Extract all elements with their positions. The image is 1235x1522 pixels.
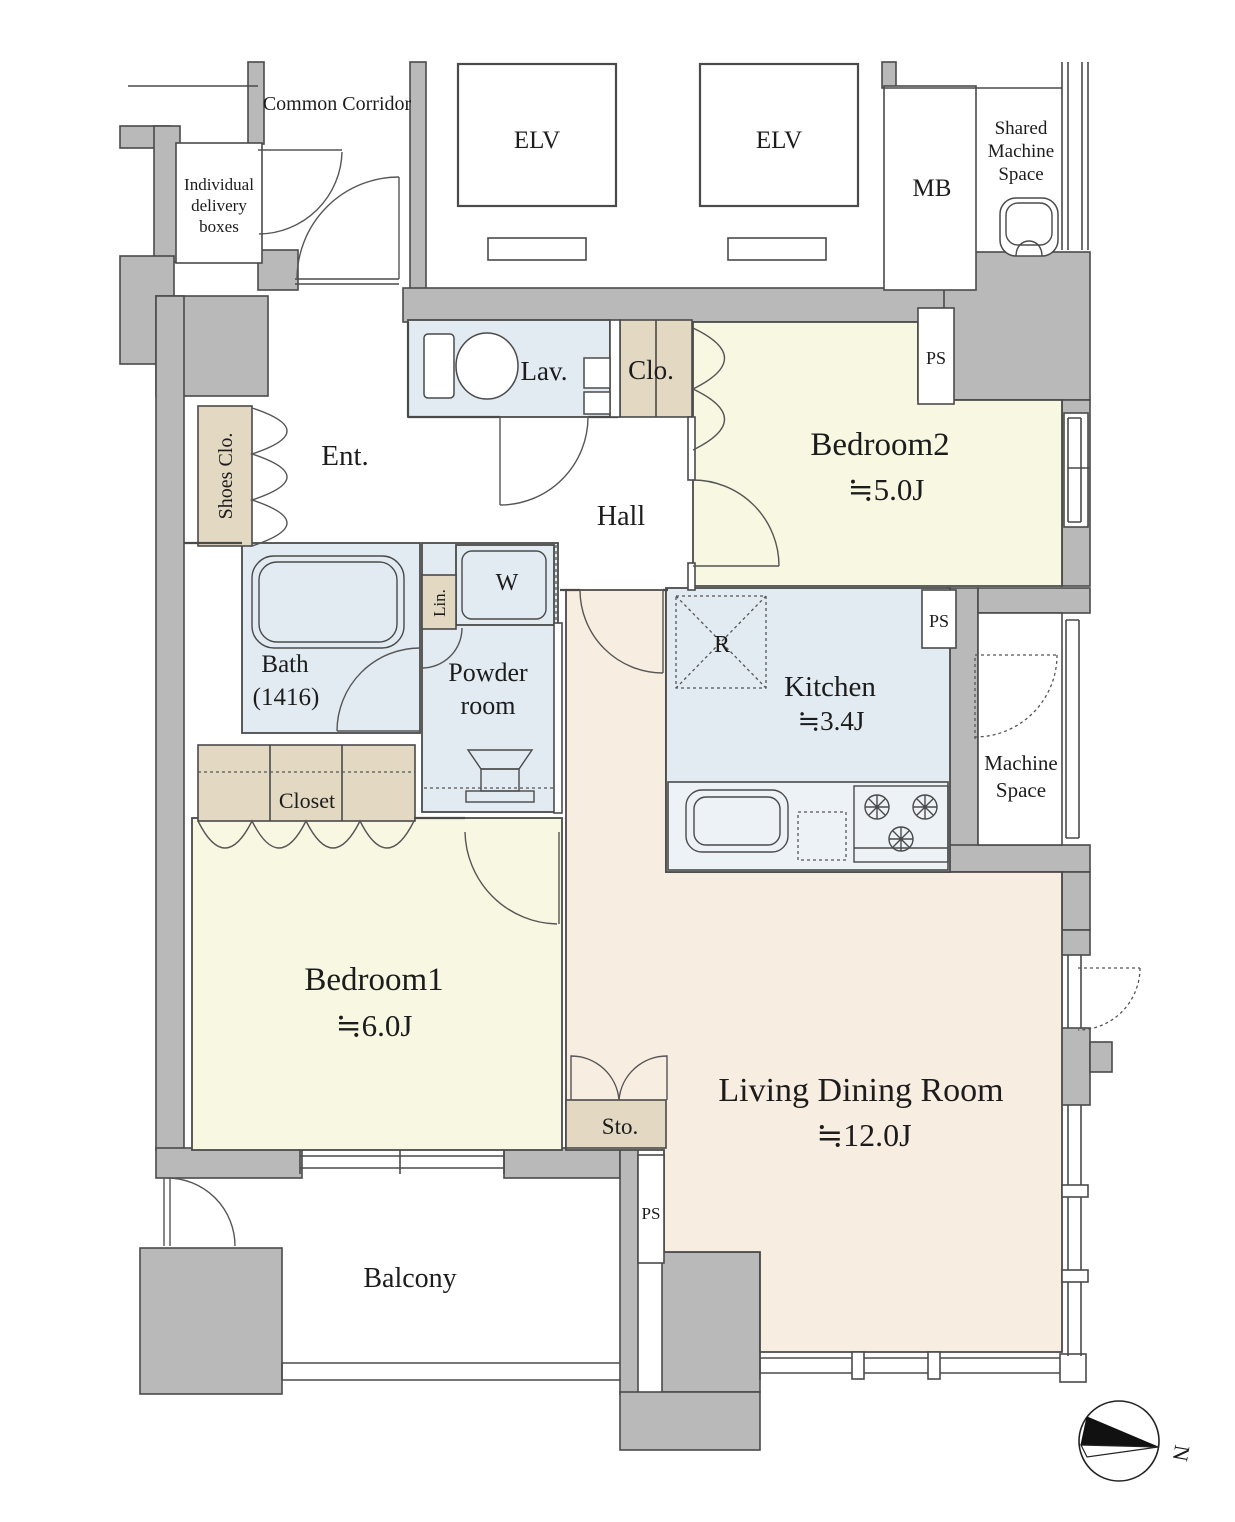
delivery-label-3: boxes xyxy=(199,217,239,236)
shoes-closet-label: Shoes Clo. xyxy=(215,433,237,520)
entrance-threshold xyxy=(295,279,399,284)
shoes-closet-folding-door xyxy=(252,408,287,546)
clo-label: Clo. xyxy=(628,355,674,385)
compass: N xyxy=(1079,1401,1195,1481)
lav-label: Lav. xyxy=(521,356,568,386)
utility-sink-icon xyxy=(1000,198,1058,256)
hall-label: Hall xyxy=(597,501,645,532)
bath-name-label: Bath xyxy=(261,651,309,678)
kitchen-name-label: Kitchen xyxy=(784,671,876,703)
fridge-label: R xyxy=(714,632,730,658)
closet-label: Closet xyxy=(279,788,335,813)
mb-label: MB xyxy=(913,175,952,202)
ldr-right-window xyxy=(1062,955,1088,1356)
exterior-service-door xyxy=(1078,968,1140,1030)
delivery-label-1: Individual xyxy=(184,175,254,194)
elevator-door-2 xyxy=(728,238,826,260)
bedroom2-name-label: Bedroom2 xyxy=(810,427,949,463)
machine-space-label-2: Space xyxy=(996,778,1046,802)
ps-bedroom2-label: PS xyxy=(926,348,946,368)
ldr-area-label: ≒12.0J xyxy=(816,1117,911,1153)
ldr-name-label: Living Dining Room xyxy=(718,1072,1003,1109)
bath-size-label: (1416) xyxy=(253,684,320,711)
machine-space-label-1: Machine xyxy=(984,751,1057,775)
delivery-door xyxy=(258,150,342,234)
powder-label-1: Powder xyxy=(448,658,528,687)
balcony-label: Balcony xyxy=(363,1263,456,1294)
bedroom1-window xyxy=(300,1150,504,1174)
lavatory-door xyxy=(500,417,588,505)
top-right-window xyxy=(1062,62,1088,250)
elv2-label: ELV xyxy=(756,127,802,154)
ps-balcony-label: PS xyxy=(642,1204,661,1223)
kitchen-counter xyxy=(668,782,948,870)
bedroom2-area-label: ≒5.0J xyxy=(848,472,925,507)
shared-machine-label-3: Space xyxy=(998,164,1043,185)
elevator-door-1 xyxy=(488,238,586,260)
linen-label: Lin. xyxy=(430,589,449,617)
ent-label: Ent. xyxy=(321,440,369,472)
sto-label: Sto. xyxy=(602,1114,638,1139)
north-label: N xyxy=(1168,1443,1195,1463)
floor-plan: Common Corridor Individual delivery boxe… xyxy=(0,0,1235,1522)
common-corridor-label: Common Corridor xyxy=(263,93,412,115)
entrance-door xyxy=(297,177,399,279)
bedroom1-name-label: Bedroom1 xyxy=(304,962,443,998)
kitchen-area-label: ≒3.4J xyxy=(798,706,865,736)
lav-shelf-icon xyxy=(584,358,610,414)
elv1-label: ELV xyxy=(514,127,560,154)
powder-label-2: room xyxy=(461,691,516,720)
bedroom2-window xyxy=(1064,413,1090,527)
delivery-label-2: delivery xyxy=(191,196,247,215)
shared-machine-label-1: Shared xyxy=(995,118,1048,139)
balcony-railing xyxy=(282,1363,620,1380)
ps-kitchen-label: PS xyxy=(929,611,949,631)
ldr-bottom-window xyxy=(760,1352,1086,1382)
machine-space-window xyxy=(1066,620,1079,838)
balcony-partition-door xyxy=(164,1178,235,1246)
room-machine-space xyxy=(978,613,1062,845)
floor-plan-svg: Common Corridor Individual delivery boxe… xyxy=(0,0,1235,1522)
shared-machine-label-2: Machine xyxy=(988,141,1054,162)
bedroom1-area-label: ≒6.0J xyxy=(336,1008,413,1043)
washer-label: W xyxy=(496,570,519,596)
toilet-icon xyxy=(424,333,518,399)
